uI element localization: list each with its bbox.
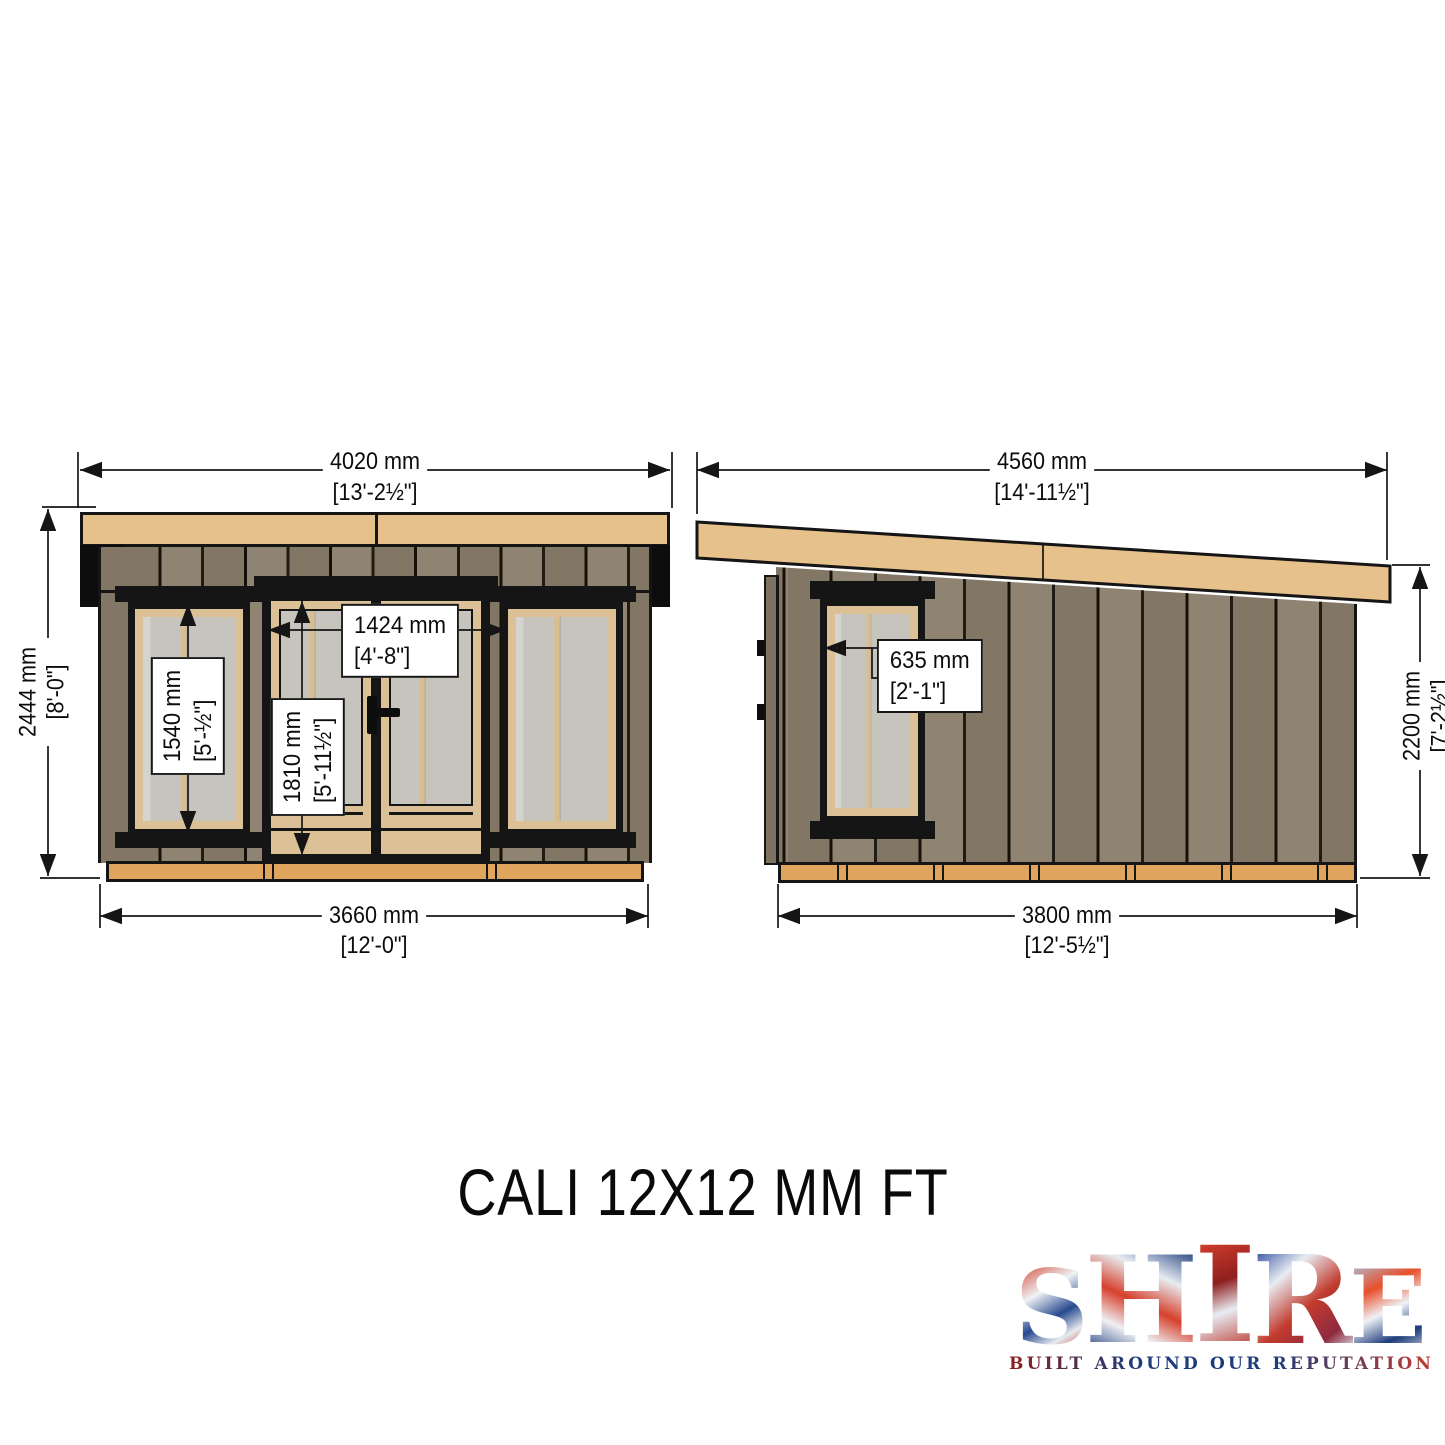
front-base-seam [495,864,497,879]
logo-letter-r: R [1252,1250,1353,1350]
front-door-header [254,576,498,593]
side-wall-height-ft: [7'-2½"] [1426,671,1445,761]
front-overall-height: 2444 mm [8'-0"] [12,638,71,746]
side-window-width-label: 635 mm [2'-1"] [877,639,983,713]
front-left-window-header [115,586,263,602]
side-base-seam [1029,865,1031,880]
side-base-seam [1230,865,1232,880]
logo-letter-s: S [1015,1267,1089,1351]
side-door-hinge-top [757,640,765,656]
side-wall-left-trim [776,575,779,864]
side-window-width-mm: 635 mm [890,645,970,676]
front-door-right-kick-panel [389,812,473,846]
side-base-seam [1221,865,1223,880]
shire-logo: S H I R E BUILT AROUND OUR REPUTATION [1009,1242,1433,1374]
sheet-title: CALI 12X12 MM FT [457,1154,948,1230]
side-overall-width-mm: 4560 mm [990,448,1094,476]
front-roof-seam [375,515,378,544]
front-right-window-glass [516,617,608,821]
side-base-seam [1134,865,1136,880]
front-right-window-header [488,586,636,602]
front-door-handle-plate [367,696,377,734]
front-base-width-ft: [12'-0"] [340,932,407,960]
front-door-left-kick-panel [279,812,363,846]
side-base-seam [1038,865,1040,880]
front-base-seam [263,864,265,879]
side-overall-width-ft: [14'-11½"] [994,479,1089,507]
front-door-height-label: 1810 mm [5'-11½"] [271,698,345,816]
side-base-seam [837,865,839,880]
front-door-width-label: 1424 mm [4'-8"] [341,604,459,678]
front-door-height-mm: 1810 mm [277,711,308,803]
side-base-seam [1125,865,1127,880]
front-right-window [501,602,623,836]
logo-letter-e: E [1349,1267,1427,1351]
front-window-height-ft: [5'-½"] [188,670,219,762]
drawing-sheet: 4020 mm [13'-2½"] 2444 mm [8'-0"] 3660 m… [0,0,1445,1445]
front-overall-width-mm: 4020 mm [323,448,427,476]
front-door-width-ft: [4'-8"] [354,641,446,672]
side-base-width-mm: 3800 mm [1015,902,1119,930]
front-overall-height-ft: [8'-0"] [42,647,70,737]
side-wall-right-trim [1354,604,1357,864]
front-base-width-mm: 3660 mm [322,902,426,930]
front-eave-right-corner [649,545,670,607]
front-roof-fascia [80,512,670,547]
front-right-window-sill [488,832,636,848]
logo-letter-h: H [1085,1252,1198,1350]
front-door-height-ft: [5'-11½"] [308,711,339,803]
front-door-width-mm: 1424 mm [354,610,446,641]
side-window-sill [810,821,935,839]
side-base-seam [846,865,848,880]
side-door-hinge-bottom [757,704,765,720]
logo-tagline: BUILT AROUND OUR REPUTATION [1009,1354,1433,1374]
front-base-seam [486,864,488,879]
side-base-width-ft: [12'-5½"] [1024,932,1109,960]
side-wall-height: 2200 mm [7'-2½"] [1396,662,1445,770]
side-base-seam [933,865,935,880]
side-window-width-ft: [2'-1"] [890,676,970,707]
side-wall-height-mm: 2200 mm [1398,671,1426,761]
side-window-header [810,581,935,599]
front-base-seam [272,864,274,879]
front-window-height-mm: 1540 mm [157,670,188,762]
front-window-height-label: 1540 mm [5'-½"] [151,657,225,775]
side-base-seam [1326,865,1328,880]
front-overall-height-mm: 2444 mm [14,647,42,737]
shire-logo-wordmark: S H I R E [1009,1242,1433,1350]
front-door-handle-lever [377,708,400,717]
side-base-seam [942,865,944,880]
side-floor-base [778,862,1357,883]
logo-letter-i: I [1194,1242,1256,1350]
side-base-seam [1317,865,1319,880]
front-floor-base [106,861,644,882]
front-overall-width-ft: [13'-2½"] [332,479,417,507]
front-left-window-sill [115,832,263,848]
